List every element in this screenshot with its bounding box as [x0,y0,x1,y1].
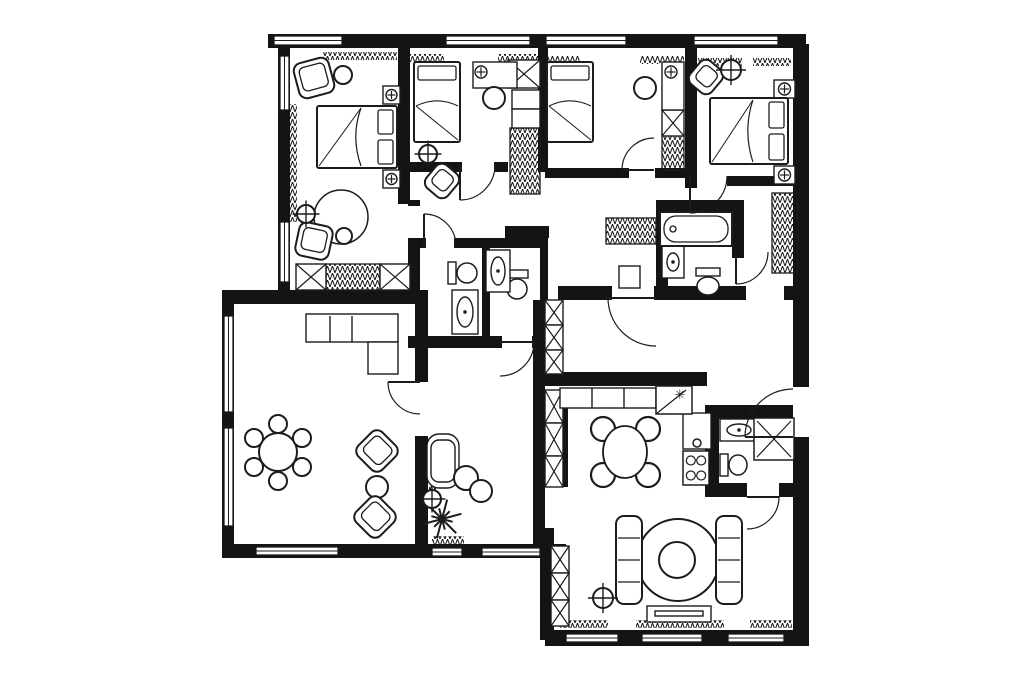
round-furniture [269,472,287,490]
bathtub-symbol [660,212,732,246]
wardrobe-crossbox [551,573,569,600]
cabinet-box [512,90,540,109]
round-furniture [245,458,263,476]
round-furniture [334,66,352,84]
window [224,428,233,526]
nightstand-symbol [774,80,795,98]
wall-segment [793,44,809,646]
hatch-strip [289,104,297,222]
wardrobe-crossbox [545,325,563,350]
cabinet-box [368,342,398,374]
door-arc [424,214,456,246]
cabinet-box [619,266,640,288]
sink-symbol [662,246,684,278]
hatch-strip [400,54,444,62]
stove-symbol [683,451,709,485]
door-arc [500,342,534,376]
armchair-symbol [294,221,334,261]
round-furniture [259,433,297,471]
round-furniture [336,228,352,244]
wall-segment [545,168,629,178]
round-furniture [293,429,311,447]
wardrobe-crossbox [662,110,684,136]
lamp-symbol [665,66,677,78]
hatch-strip [662,134,684,170]
floor-plan-svg: ✳ [0,0,1024,682]
round-furniture [470,480,492,502]
door-arc [388,382,420,414]
round-furniture [693,439,701,447]
wall-segment [454,238,548,248]
wall-segment [656,200,744,212]
armchair-symbol [292,56,336,100]
wardrobe-crossbox [545,300,563,325]
wall-segment [685,42,697,188]
cabinet-box [560,388,656,408]
hatch-strip [323,52,397,60]
window [642,634,702,642]
lamp-symbol [475,66,487,78]
wardrobe-crossbox [545,350,563,374]
wall-segment [415,304,428,382]
door-arc [608,298,656,346]
svg-text:✳: ✳ [675,388,686,403]
window [224,316,233,412]
wall-segment [494,162,508,172]
round-furniture [245,429,263,447]
armchair-symbol [353,427,401,475]
window [256,547,338,555]
door-arc [622,138,654,170]
wardrobe-crossbox [545,456,563,487]
wall-segment [779,483,793,497]
window [546,36,626,45]
wall-segment [222,290,428,304]
wardrobe-crossbox [551,546,569,573]
window [280,222,289,282]
wall-segment [415,436,428,544]
round-furniture [293,458,311,476]
double-bed [317,106,397,168]
single-bed [414,62,460,142]
wardrobe-crossbox [545,423,563,456]
shower-symbol [754,418,794,460]
double-bed [710,98,788,164]
nightstand-symbol [383,170,400,188]
sink-symbol [486,250,510,292]
wall-segment [533,300,545,546]
kitchen-table-set [591,417,660,487]
wall-segment [784,286,798,300]
wardrobe-crossbox [551,600,569,626]
cabinet-box [512,109,540,128]
wardrobe-crossbox [380,264,410,290]
hatch-strip [510,128,540,194]
fridge-symbol: ✳ [656,386,692,414]
window [280,56,289,110]
window [566,634,618,642]
window [728,634,784,642]
hatch-strip [772,193,798,273]
wall-segment [545,372,707,386]
toilet-symbol [720,454,747,476]
round-furniture [366,476,388,498]
hatch-strip [750,620,792,628]
hatch-strip [326,264,380,290]
round-furniture [634,77,656,99]
cabinet-box [431,440,455,482]
dining-set [616,516,742,604]
window [446,36,530,45]
window [482,548,540,556]
nightstand-symbol [383,86,400,104]
round-furniture [269,415,287,433]
window [432,548,462,556]
floor-plan-canvas: ✳ [0,0,1024,682]
wall-segment [558,286,612,300]
wall-segment [705,483,747,497]
window [274,36,342,45]
round-furniture [483,87,505,109]
toilet-symbol [448,262,477,284]
sink-symbol [452,290,478,334]
toilet-symbol [696,268,720,295]
wall-segment [732,200,744,258]
door-arc [747,497,779,529]
nightstand-symbol [774,166,795,184]
ceiling-light-symbol [588,583,618,613]
hatch-strip [753,58,791,66]
door-arc [460,165,495,200]
wall-segment [505,226,549,238]
door-opening [408,206,420,238]
hatch-strip [606,218,656,244]
armchair-symbol [351,493,399,541]
door-opening [793,387,809,437]
window [694,36,778,45]
wardrobe-crossbox [296,264,326,290]
single-bed [547,62,593,142]
cabinet-box [655,611,703,616]
